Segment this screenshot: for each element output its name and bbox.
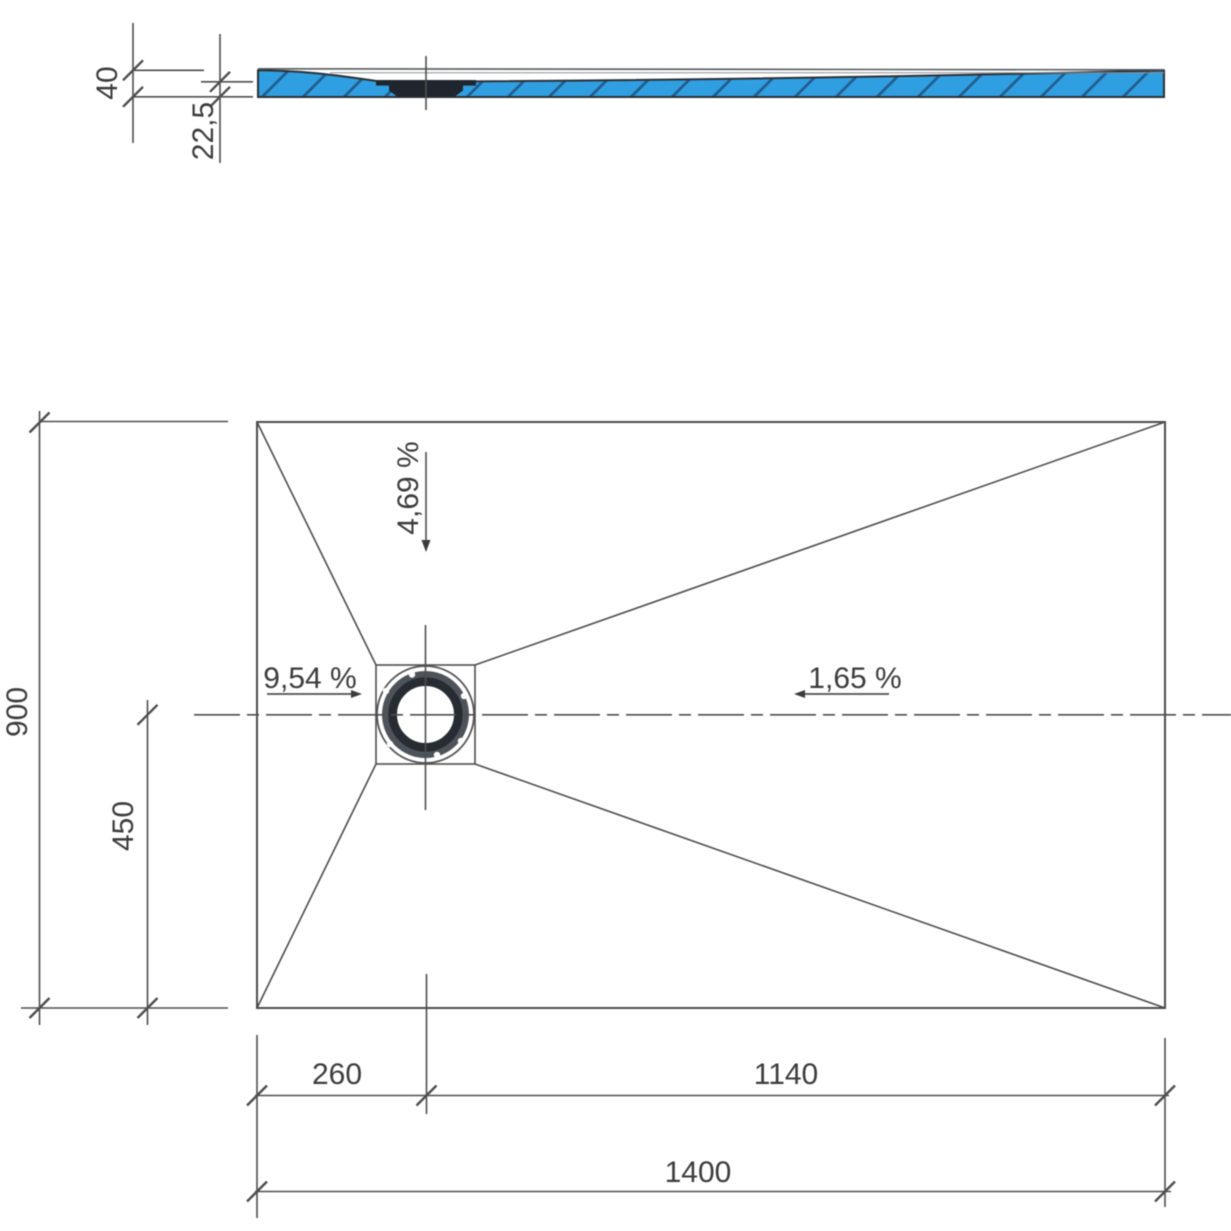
svg-text:4,69 %: 4,69 % [392, 441, 425, 534]
svg-text:260: 260 [312, 1058, 362, 1091]
svg-text:1140: 1140 [754, 1058, 819, 1091]
svg-text:900: 900 [1, 687, 34, 737]
svg-text:9,54 %: 9,54 % [263, 662, 356, 695]
svg-text:450: 450 [107, 801, 140, 851]
svg-text:1,65 %: 1,65 % [808, 662, 901, 695]
svg-text:22,5: 22,5 [187, 102, 220, 160]
svg-text:40: 40 [91, 66, 124, 99]
svg-text:1400: 1400 [665, 1156, 732, 1189]
